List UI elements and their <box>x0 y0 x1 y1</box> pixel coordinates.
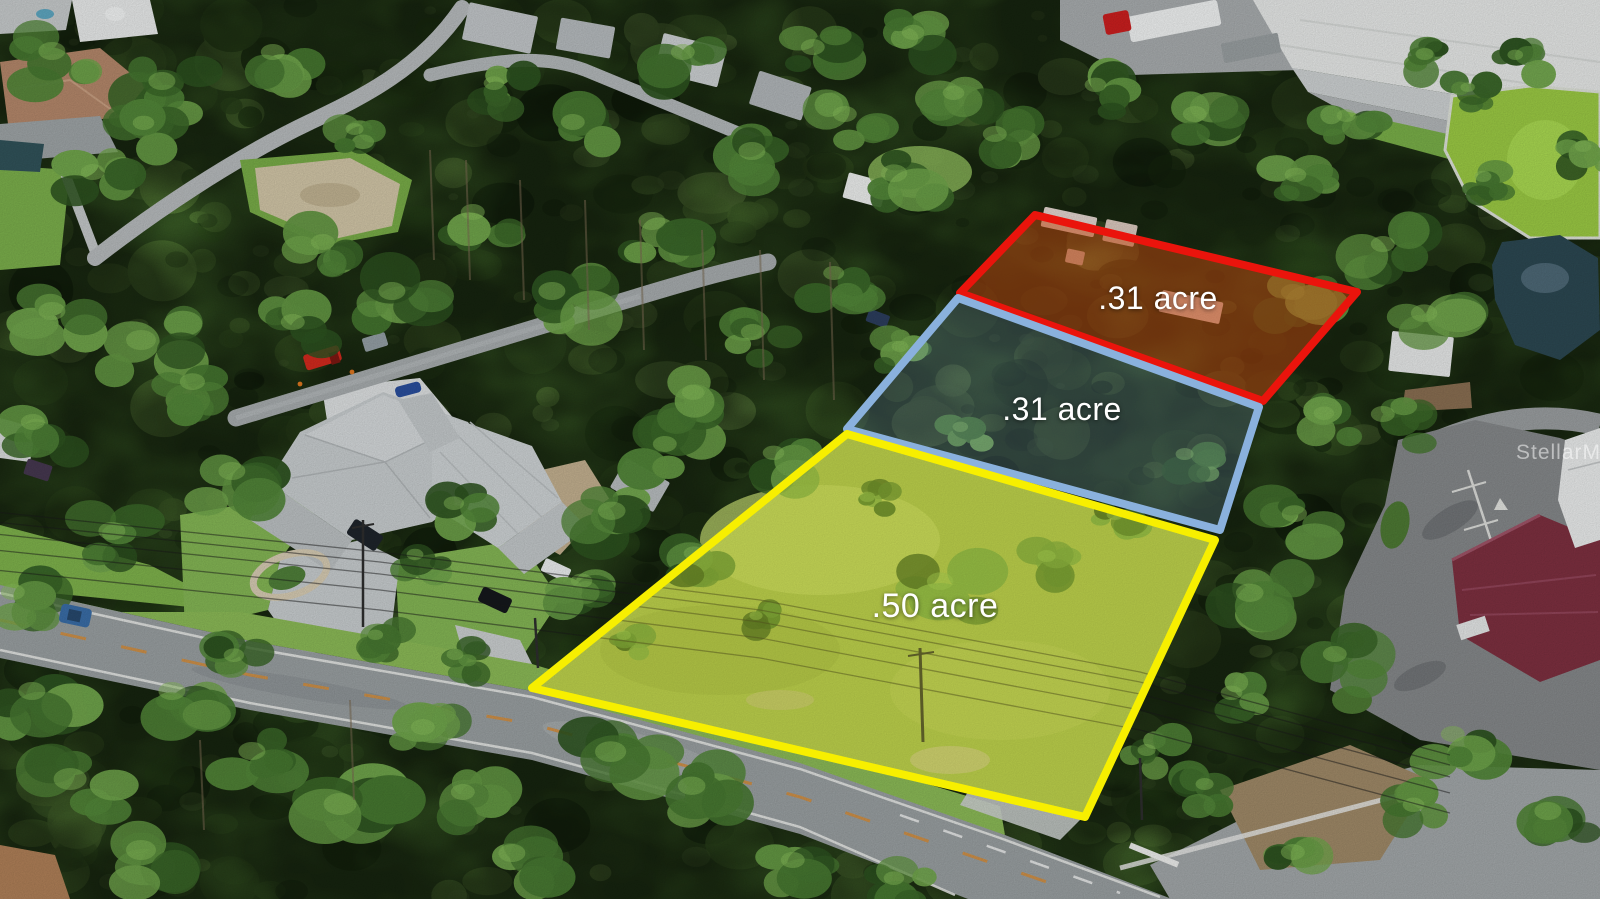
rear-parcel-acreage-label: .31 acre <box>1098 280 1218 316</box>
photo-grain <box>0 0 1600 899</box>
aerial-photo-canvas: .31 acre .31 acre .50 acre StellarMLS <box>0 0 1600 899</box>
aerial-listing-photo: .31 acre .31 acre .50 acre StellarMLS <box>0 0 1600 899</box>
middle-parcel-acreage-label: .31 acre <box>1002 391 1122 427</box>
front-parcel-acreage-label: .50 acre <box>872 587 999 625</box>
mls-watermark: StellarMLS <box>1516 441 1600 464</box>
